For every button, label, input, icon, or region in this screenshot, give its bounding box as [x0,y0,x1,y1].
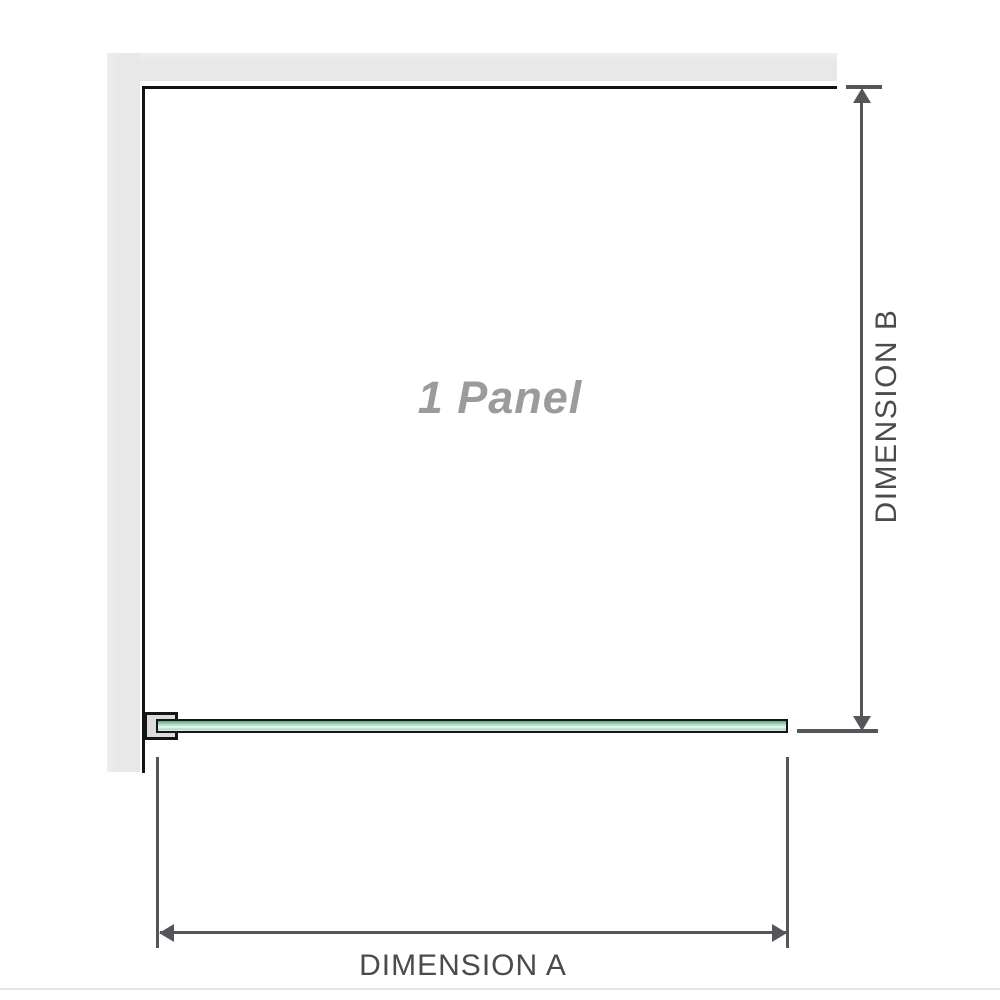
enclosure-top-edge [142,86,837,89]
footer-divider [0,988,1000,990]
arrow-up-icon [853,88,871,103]
dimension-a-extension-right [786,757,789,948]
dimension-a-label: DIMENSION A [333,949,593,983]
dimension-a-extension-left [156,757,159,948]
wall-segment-top [107,53,837,81]
glass-panel [156,719,788,733]
arrow-down-icon [853,716,871,731]
arrow-left-icon [159,924,174,942]
dimension-a-line [160,931,786,934]
dimension-b-label: DIMENSION B [869,286,905,546]
panel-count-label: 1 Panel [300,372,700,424]
diagram-canvas: 1 Panel DIMENSION B DIMENSION A [0,0,1000,1000]
wall-segment-left [107,53,140,772]
enclosure-left-edge [142,86,145,773]
arrow-right-icon [772,924,787,942]
dimension-b-line [860,98,863,720]
